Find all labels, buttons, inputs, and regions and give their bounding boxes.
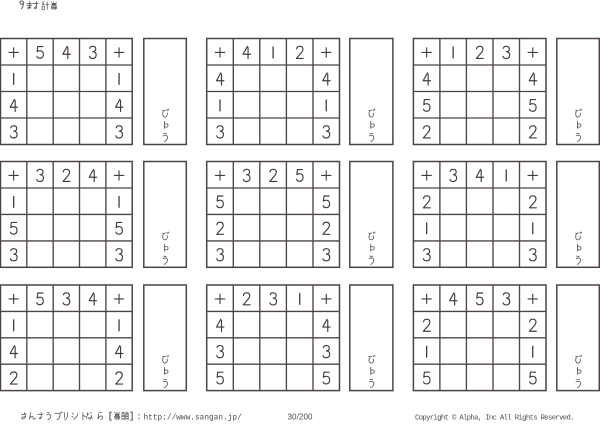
svg-text:30/200: 30/200 <box>288 412 314 421</box>
svg-text:Copyright © Alpha, Inc All Rig: Copyright © Alpha, Inc All Rights Reserv… <box>415 414 575 422</box>
svg-text:http://www.sangan.jp/: http://www.sangan.jp/ <box>144 414 243 422</box>
